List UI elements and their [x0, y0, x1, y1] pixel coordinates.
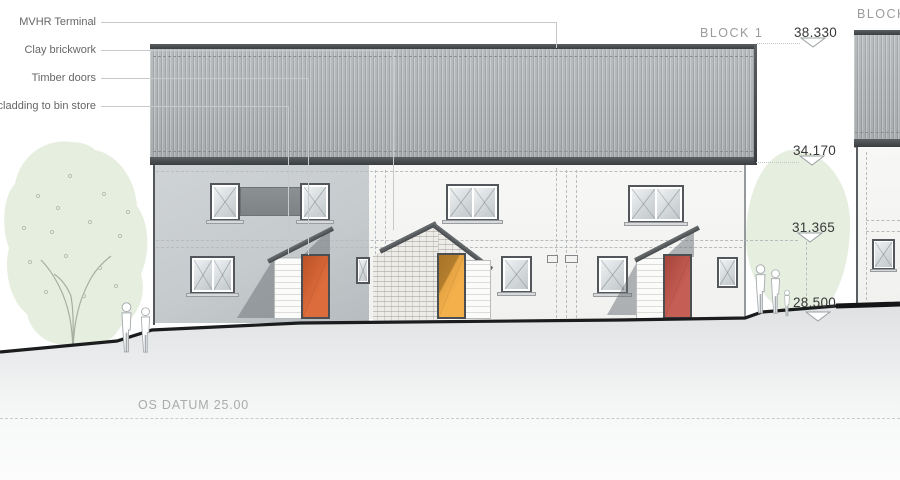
block1-label: BLOCK 1: [700, 26, 763, 40]
glass: [875, 242, 892, 267]
first-floor-dashed-line: [156, 240, 798, 241]
sill: [206, 220, 244, 224]
window-unit3-door-side: [717, 257, 738, 288]
glass: [359, 260, 367, 281]
people-left-2: [136, 307, 155, 356]
sill: [296, 220, 334, 224]
window-unit1-door-side: [356, 257, 370, 284]
roof-block1: [150, 44, 757, 165]
block2-label: BLOCK 2: [857, 7, 900, 21]
roof-ridge-band: [150, 44, 757, 49]
level-31365-arrow: [797, 232, 823, 243]
glass: [505, 260, 528, 289]
person-child-right: [781, 290, 793, 318]
leader-mvhr-v: [556, 22, 557, 48]
level-38330-leader: [757, 43, 800, 44]
eaves-dashed-line: [156, 171, 742, 172]
callout-timber-doors: Timber doors: [0, 72, 96, 84]
block2-floor-dash-1: [866, 220, 900, 221]
meter-box-1: [547, 255, 558, 263]
glass: [194, 260, 212, 290]
glass: [214, 187, 236, 217]
roof-block2-ridge: [854, 30, 900, 35]
roof-block2: [854, 30, 900, 148]
roof-seam-line-top: [153, 56, 753, 57]
level-28500-arrow: [805, 311, 831, 322]
callout-clay-brickwork: Clay brickwork: [0, 44, 96, 56]
spandrel-panel: [240, 187, 302, 216]
leader-cladding-h: [101, 106, 288, 107]
people-left-1: [116, 302, 137, 356]
level-34170-leader: [756, 162, 799, 163]
roof-seam-line-bottom: [153, 151, 753, 152]
glass: [474, 188, 496, 217]
leader-mvhr-h: [101, 22, 556, 23]
glass: [657, 189, 680, 219]
block2-floor-dash-2: [866, 231, 900, 232]
glass: [720, 260, 735, 285]
glass: [601, 260, 624, 290]
glass: [450, 188, 472, 217]
level-38330-arrow: [800, 37, 826, 48]
roof-block2-eave: [854, 139, 900, 147]
window-unit1-upper-left: [210, 183, 240, 221]
os-datum-line: [0, 418, 900, 419]
roof-block2-seam: [855, 132, 899, 133]
leader-brickwork-h: [101, 50, 393, 51]
window-unit1-ground: [190, 256, 235, 294]
leader-doors-v: [308, 78, 309, 255]
window-unit2-upper: [446, 184, 499, 221]
leader-brickwork-v: [393, 50, 394, 230]
sill: [442, 220, 503, 224]
window-unit2-ground: [501, 256, 532, 293]
callout-cladding-bin-store: cladding to bin store: [0, 100, 96, 112]
glass: [214, 260, 232, 290]
window-block2: [872, 239, 895, 270]
sill: [870, 269, 897, 272]
leader-cladding-v: [288, 106, 289, 257]
level-28500: 28.500: [793, 295, 836, 310]
roof-eave-band: [150, 157, 755, 165]
elevation-drawing: OS DATUM 25.00 MVHR Terminal Clay: [0, 0, 900, 480]
callout-mvhr-terminal: MVHR Terminal: [0, 16, 96, 28]
window-unit1-upper-right: [300, 183, 330, 221]
block2-dashed-vertical: [866, 152, 867, 300]
facade-block2: [856, 147, 900, 303]
os-datum-label: OS DATUM 25.00: [138, 398, 249, 412]
sill: [624, 222, 688, 226]
window-unit3-upper: [628, 185, 684, 223]
glass: [632, 189, 655, 219]
leader-doors-h: [101, 78, 308, 79]
meter-box-2: [565, 255, 578, 263]
roof-verge-right: [754, 44, 757, 165]
level-34170-arrow: [799, 155, 825, 166]
